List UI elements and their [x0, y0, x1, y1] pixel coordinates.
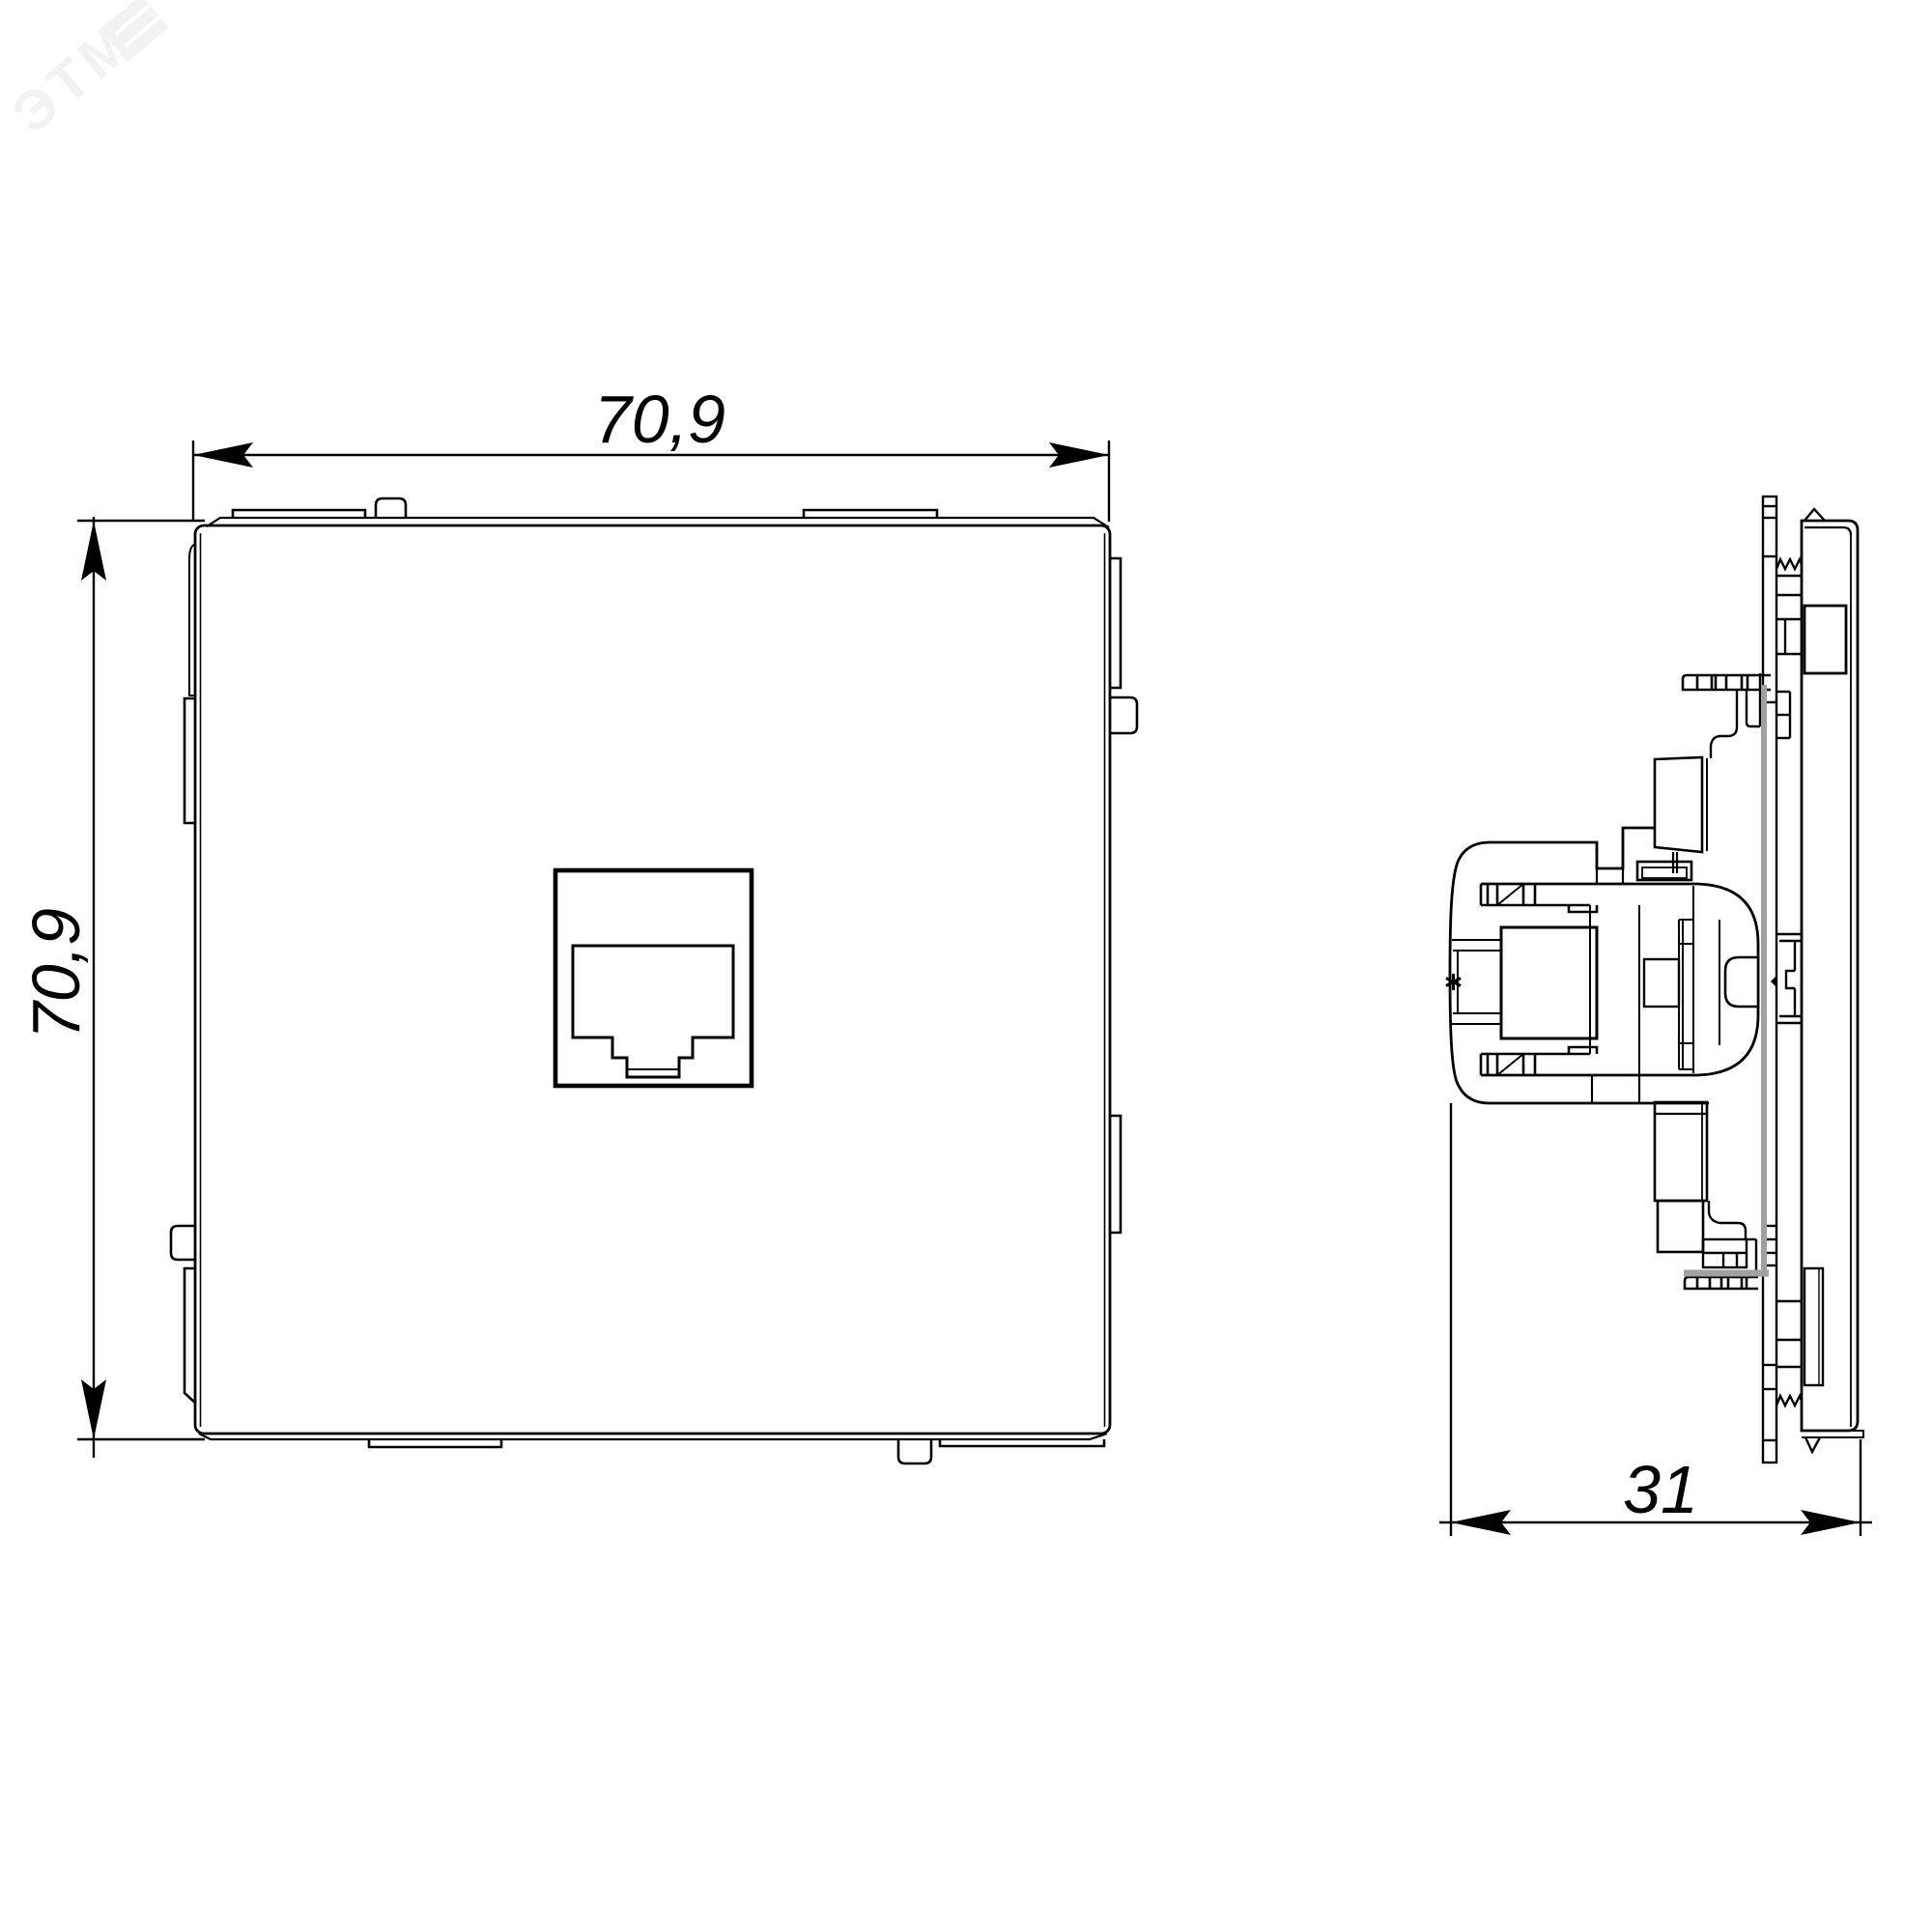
svg-text:70,9: 70,9: [18, 908, 94, 1039]
svg-text:31: 31: [1623, 1452, 1698, 1527]
svg-text:70,9: 70,9: [594, 382, 725, 457]
